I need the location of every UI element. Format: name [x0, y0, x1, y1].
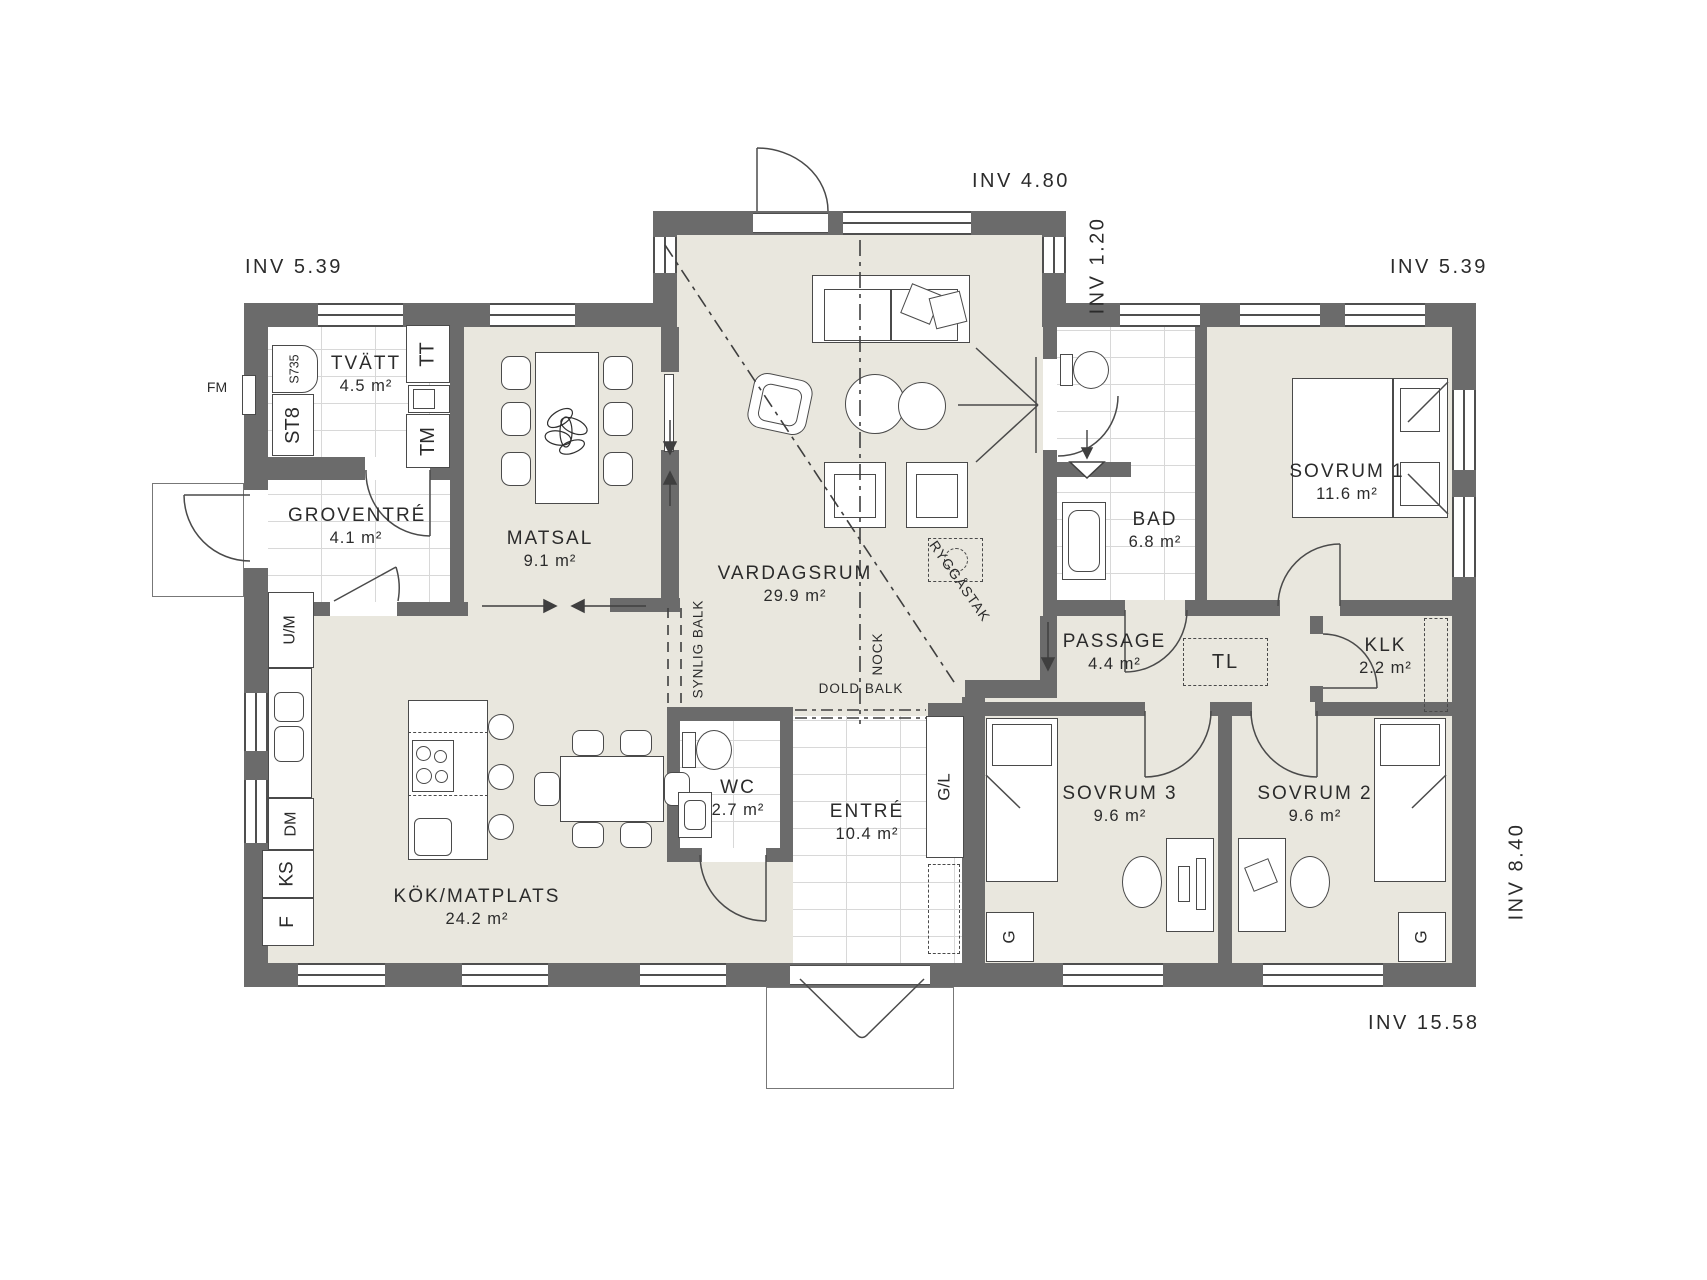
- pocket-arrow-down-head: [664, 442, 676, 454]
- sovrum3-bed-fold: [986, 775, 1020, 808]
- label-gl: G/L: [926, 716, 964, 858]
- entrance-door-leaf-2: [868, 979, 924, 1034]
- ryggastak-line: [665, 245, 956, 685]
- label-sovrum3: SOVRUM 39.6 m²: [1055, 782, 1185, 826]
- label-klk: KLK2.2 m²: [1338, 634, 1433, 678]
- label-fm: FM: [196, 378, 238, 396]
- floor-plan: INV 5.39 INV 4.80 INV 1.20 INV 5.39 INV …: [0, 0, 1707, 1280]
- bad-door-ray-3: [976, 405, 1038, 462]
- label-sovrum1: SOVRUM 111.6 m²: [1282, 460, 1412, 504]
- sovrum1-bed-fold: [1408, 382, 1448, 514]
- dim-top-left: INV 5.39: [245, 256, 343, 279]
- label-g3: G: [986, 912, 1034, 962]
- label-tm: TM: [406, 414, 450, 468]
- label-um: U/M: [268, 592, 314, 668]
- label-tl: TL: [1183, 638, 1268, 686]
- label-f: F: [262, 898, 314, 946]
- sovrum2-bed-fold: [1412, 775, 1446, 808]
- label-sovrum2: SOVRUM 29.6 m²: [1250, 782, 1380, 826]
- drain-triangle: [1070, 462, 1104, 478]
- plant-icon: [544, 405, 590, 457]
- entry-door-arc: [184, 495, 250, 561]
- label-s735: S735: [272, 345, 318, 393]
- shower-arc: [1058, 396, 1118, 456]
- label-vardagsrum: VARDAGSRUM29.9 m²: [715, 562, 875, 606]
- dim-bottom: INV 15.58: [1368, 1012, 1479, 1035]
- dim-top-right: INV 5.39: [1390, 256, 1488, 279]
- wc-door-arc: [700, 855, 766, 921]
- label-st8: ST8: [272, 394, 314, 456]
- bad-door-ray-1: [976, 348, 1038, 405]
- label-tt: TT: [406, 325, 450, 383]
- label-dm: DM: [268, 798, 314, 850]
- pocket-arrow-right-head: [544, 600, 556, 612]
- annotation-overlay: [0, 0, 1707, 1280]
- pocket-arrow-up-head: [664, 472, 676, 484]
- label-bad: BAD6.8 m²: [1100, 508, 1210, 552]
- drain-arrow-head: [1082, 448, 1092, 458]
- dim-top-center: INV 4.80: [972, 170, 1070, 193]
- label-kok: KÖK/MATPLATS24.2 m²: [392, 885, 562, 929]
- label-g2: G: [1398, 912, 1446, 962]
- label-groventre: GROVENTRÉ4.1 m²: [288, 504, 424, 548]
- entrance-door-arc: [856, 1034, 868, 1038]
- dim-right: INV 8.40: [1506, 817, 1529, 927]
- sovrum2-door-arc: [1251, 711, 1317, 777]
- label-matsal: MATSAL9.1 m²: [490, 527, 610, 571]
- pocket-arrow-left-head: [572, 600, 584, 612]
- label-ks: KS: [262, 850, 314, 898]
- label-passage: PASSAGE4.4 m²: [1052, 630, 1177, 674]
- label-nock: NOCK: [869, 623, 885, 685]
- label-entre: ENTRÉ10.4 m²: [812, 800, 922, 844]
- label-synlig-balk: SYNLIG BALK: [690, 592, 706, 707]
- patio-door-arc: [757, 148, 828, 211]
- groventre-door-arc: [396, 567, 399, 601]
- label-wc: WC2.7 m²: [688, 776, 788, 820]
- dim-step: INV 1.20: [1087, 216, 1110, 316]
- sovrum1-door-arc: [1278, 544, 1340, 606]
- label-dold-balk: DOLD BALK: [806, 680, 916, 696]
- groventre-door-leaf: [334, 567, 396, 601]
- entrance-door-leaf-1: [800, 979, 856, 1034]
- sovrum3-door-arc: [1145, 711, 1211, 777]
